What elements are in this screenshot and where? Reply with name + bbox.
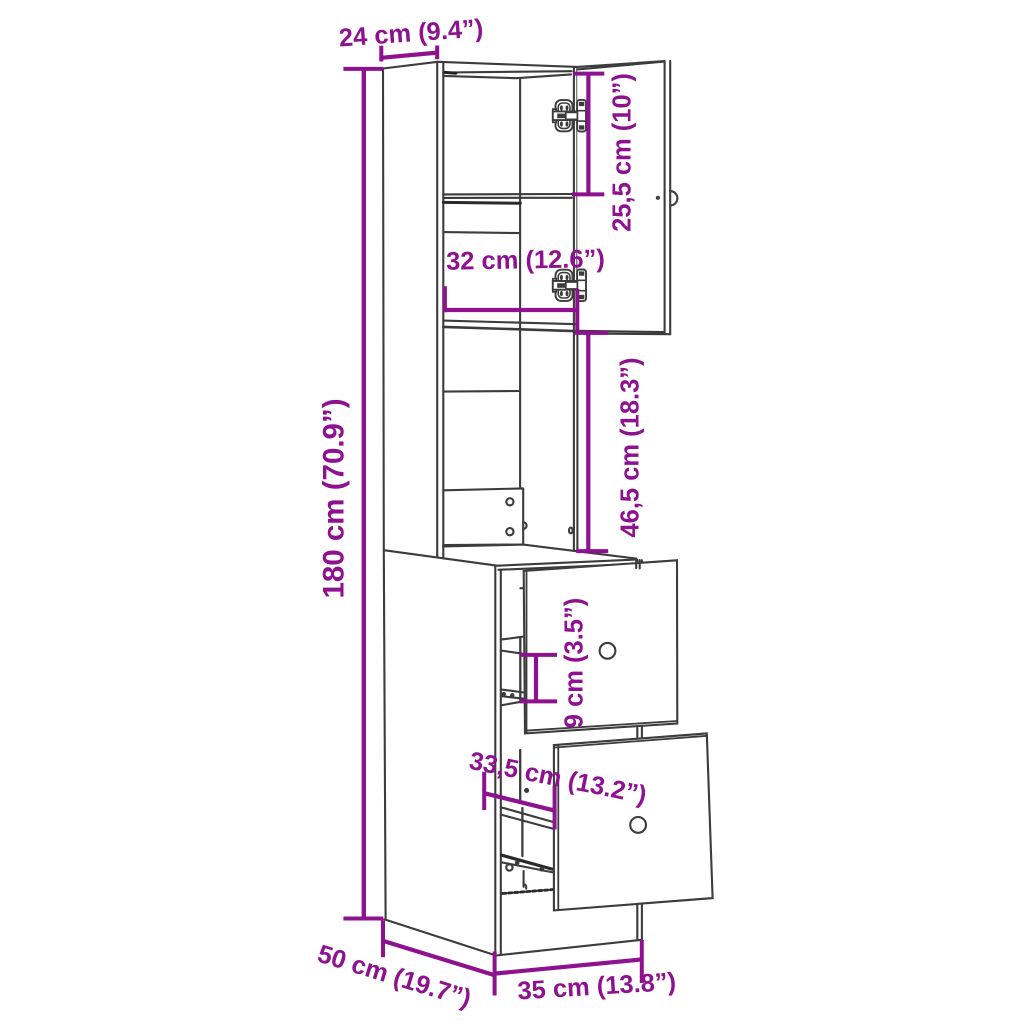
svg-text:9 cm (3.5”): 9 cm (3.5”) (561, 598, 589, 728)
svg-text:25,5 cm (10”): 25,5 cm (10”) (609, 73, 637, 232)
svg-text:32 cm (12.6”): 32 cm (12.6”) (446, 245, 605, 276)
svg-text:46,5 cm (18.3”): 46,5 cm (18.3”) (617, 357, 645, 537)
svg-text:180 cm (70.9”): 180 cm (70.9”) (318, 398, 351, 598)
